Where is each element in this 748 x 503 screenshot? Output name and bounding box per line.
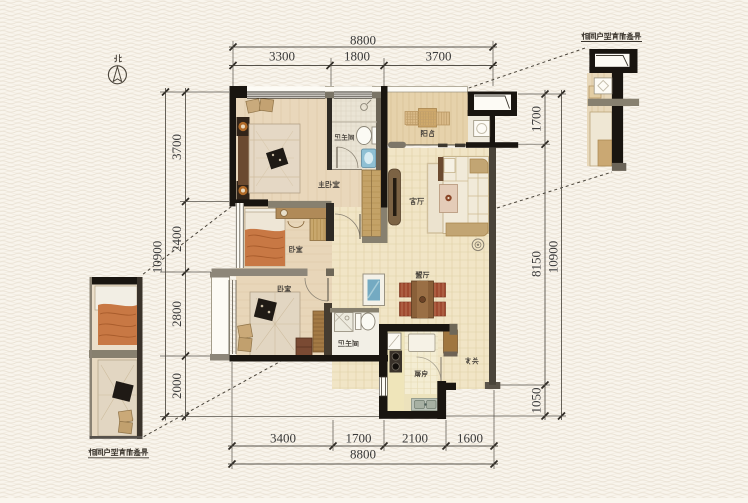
svg-text:2800: 2800 [169,301,184,327]
svg-text:3300: 3300 [269,49,295,64]
svg-text:10900: 10900 [546,241,561,274]
svg-text:3700: 3700 [169,134,184,160]
svg-text:8150: 8150 [529,251,544,277]
svg-text:2400: 2400 [169,226,184,252]
svg-text:1700: 1700 [529,106,544,132]
svg-text:1050: 1050 [529,388,544,414]
svg-text:1700: 1700 [346,431,372,446]
svg-text:2100: 2100 [402,431,428,446]
svg-text:1800: 1800 [344,49,370,64]
svg-text:8800: 8800 [350,447,376,462]
svg-text:3400: 3400 [270,431,296,446]
svg-text:1600: 1600 [457,431,483,446]
svg-text:3700: 3700 [426,49,452,64]
svg-text:10900: 10900 [150,241,165,274]
svg-text:8800: 8800 [350,33,376,48]
svg-text:2000: 2000 [169,373,184,399]
